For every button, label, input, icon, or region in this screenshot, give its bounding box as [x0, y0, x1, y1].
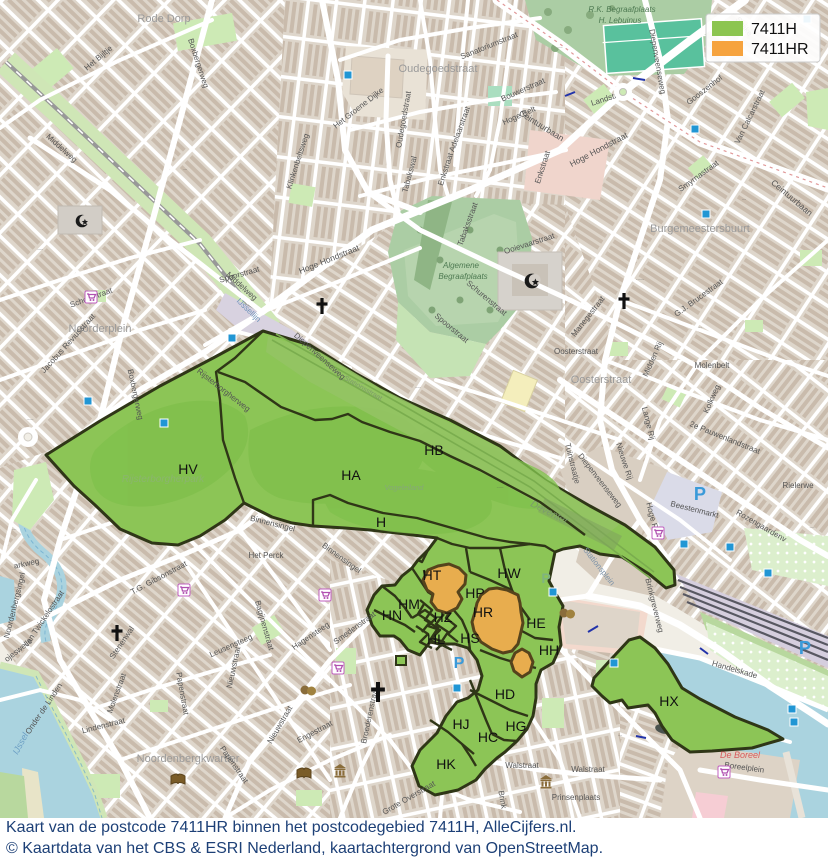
svg-text:Het Perck: Het Perck — [248, 551, 284, 560]
svg-text:HL: HL — [427, 631, 445, 647]
svg-text:HP: HP — [465, 585, 484, 601]
svg-text:P: P — [454, 654, 465, 672]
svg-text:HX: HX — [659, 693, 679, 709]
svg-text:Algemene: Algemene — [442, 261, 480, 270]
svg-text:H. Lebuinus: H. Lebuinus — [599, 16, 642, 25]
svg-text:Molenbelt: Molenbelt — [695, 361, 730, 370]
svg-text:HN: HN — [382, 607, 402, 623]
svg-text:HH: HH — [539, 642, 559, 658]
svg-text:Rielerwe: Rielerwe — [782, 481, 814, 490]
svg-text:P: P — [694, 484, 706, 504]
svg-text:P: P — [541, 570, 550, 586]
svg-text:HK: HK — [436, 756, 456, 772]
svg-text:HW: HW — [497, 565, 521, 581]
svg-text:Oudegoedstraat: Oudegoedstraat — [399, 63, 478, 75]
svg-text:7411H: 7411H — [751, 21, 797, 38]
svg-text:Burgemeestersbuurt: Burgemeestersbuurt — [650, 223, 750, 235]
svg-text:HC: HC — [478, 729, 498, 745]
svg-text:HB: HB — [424, 442, 443, 458]
svg-text:R.K. Begraafplaats: R.K. Begraafplaats — [588, 5, 655, 14]
svg-text:Vogeleiland: Vogeleiland — [385, 483, 425, 492]
svg-text:Oosterstraat: Oosterstraat — [554, 347, 599, 356]
svg-text:HD: HD — [495, 686, 515, 702]
svg-text:Noorderw: Noorderw — [12, 529, 17, 531]
svg-text:HA: HA — [341, 467, 361, 483]
svg-text:Oosterstraat: Oosterstraat — [571, 374, 632, 386]
svg-text:7411HR: 7411HR — [751, 41, 809, 58]
svg-text:HS: HS — [460, 630, 479, 646]
svg-text:HV: HV — [178, 461, 198, 477]
svg-text:Walstraat: Walstraat — [505, 761, 539, 770]
svg-text:HE: HE — [526, 615, 545, 631]
svg-text:H: H — [376, 514, 386, 530]
svg-text:De Boreel: De Boreel — [720, 750, 761, 760]
svg-text:HZ: HZ — [434, 609, 453, 625]
svg-text:Begraafplaats: Begraafplaats — [438, 272, 487, 281]
svg-text:HG: HG — [506, 718, 527, 734]
svg-text:Rozengaa: Rozengaa — [810, 527, 815, 529]
svg-text:Rode Dorp: Rode Dorp — [137, 13, 190, 25]
svg-text:Walstraat: Walstraat — [571, 765, 605, 774]
svg-text:HR: HR — [473, 604, 493, 620]
svg-text:Prinsenplaats: Prinsenplaats — [552, 793, 600, 802]
svg-text:P: P — [799, 638, 811, 658]
svg-text:HJ: HJ — [452, 716, 469, 732]
svg-text:HT: HT — [423, 567, 442, 583]
